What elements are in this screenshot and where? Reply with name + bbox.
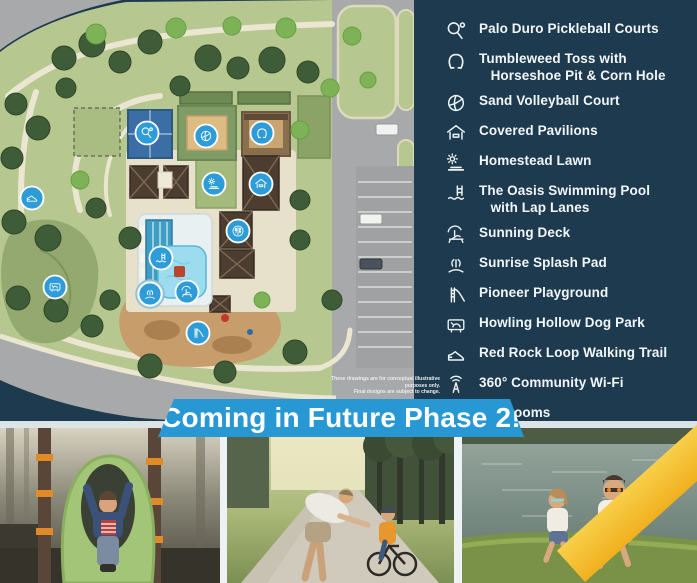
pool-ladder-icon: [443, 182, 469, 204]
pool-marker: [150, 247, 173, 270]
playground-slide-icon: [443, 284, 469, 306]
legend-label: Pioneer Playground: [479, 284, 608, 301]
legend-label: Howling Hollow Dog Park: [479, 314, 645, 331]
legend-label: Sunrise Splash Pad: [479, 254, 607, 271]
pickleball-marker: [136, 122, 159, 145]
walking-trail-marker: [21, 187, 44, 210]
lawn-marker: [203, 173, 226, 196]
photo-playground-slide: [0, 428, 220, 583]
lawn-sun-icon: [443, 152, 469, 174]
legend-item-dog-park: Howling Hollow Dog Park: [443, 314, 691, 336]
legend-item-walking-trail: Red Rock Loop Walking Trail: [443, 344, 691, 366]
legend-label: 360° Community Wi-Fi: [479, 374, 624, 391]
legend-item-playground: Pioneer Playground: [443, 284, 691, 306]
wifi-tower-icon: [443, 374, 469, 396]
horseshoe-icon: [443, 50, 469, 72]
legend-label: The Oasis Swimming Pool with Lap Lanes: [479, 182, 650, 216]
disclaimer-line2: Final designs are subject to change.: [354, 389, 440, 395]
restrooms-marker: [227, 220, 250, 243]
legend-item-pickleball: Palo Duro Pickleball Courts: [443, 20, 691, 42]
legend-item-pool: The Oasis Swimming Pool with Lap Lanes: [443, 182, 691, 216]
walking-shoe-icon: [443, 344, 469, 366]
site-map: [0, 0, 414, 421]
pickleball-paddle-icon: [443, 20, 469, 42]
volleyball-icon: [443, 92, 469, 114]
legend-item-pavilions: Covered Pavilions: [443, 122, 691, 144]
dog-park-marker: [44, 276, 67, 299]
legend-label: Red Rock Loop Walking Trail: [479, 344, 667, 361]
legend-label: Tumbleweed Toss with Horseshoe Pit & Cor…: [479, 50, 666, 84]
legend-item-splash-pad: Sunrise Splash Pad: [443, 254, 691, 276]
volleyball-marker: [195, 125, 218, 148]
community-amenities-flyer: Palo Duro Pickleball CourtsTumbleweed To…: [0, 0, 697, 583]
legend-item-volleyball: Sand Volleyball Court: [443, 92, 691, 114]
legend-label: Palo Duro Pickleball Courts: [479, 20, 659, 37]
disclaimer-line1: These drawings are for conceptual illust…: [331, 376, 440, 389]
legend-item-sunning-deck: Sunning Deck: [443, 224, 691, 246]
legend-item-wifi: 360° Community Wi-Fi: [443, 374, 691, 396]
splash-pad-icon: [443, 254, 469, 276]
pavilion-marker: [250, 173, 273, 196]
legend-label: Covered Pavilions: [479, 122, 598, 139]
legend-label: Sunning Deck: [479, 224, 570, 241]
phase2-banner: Coming in Future Phase 2!: [158, 399, 524, 437]
map-disclaimer: These drawings are for conceptual illust…: [318, 376, 440, 396]
map-section: Palo Duro Pickleball CourtsTumbleweed To…: [0, 0, 697, 421]
legend-label: Sand Volleyball Court: [479, 92, 620, 109]
banner-text: Coming in Future Phase 2!: [161, 402, 521, 434]
sunning-deck-icon: [443, 224, 469, 246]
legend-label: Homestead Lawn: [479, 152, 591, 169]
legend-item-lawn: Homestead Lawn: [443, 152, 691, 174]
photo-family-biking: [227, 428, 454, 583]
sunning-deck-marker: [176, 281, 199, 304]
amenities-legend: Palo Duro Pickleball CourtsTumbleweed To…: [413, 0, 697, 421]
playground-marker: [187, 322, 210, 345]
pavilion-icon: [443, 122, 469, 144]
legend-item-horseshoe: Tumbleweed Toss with Horseshoe Pit & Cor…: [443, 50, 691, 84]
splash-pad-marker: [139, 283, 162, 306]
dog-park-icon: [443, 314, 469, 336]
horseshoe-marker: [251, 122, 274, 145]
